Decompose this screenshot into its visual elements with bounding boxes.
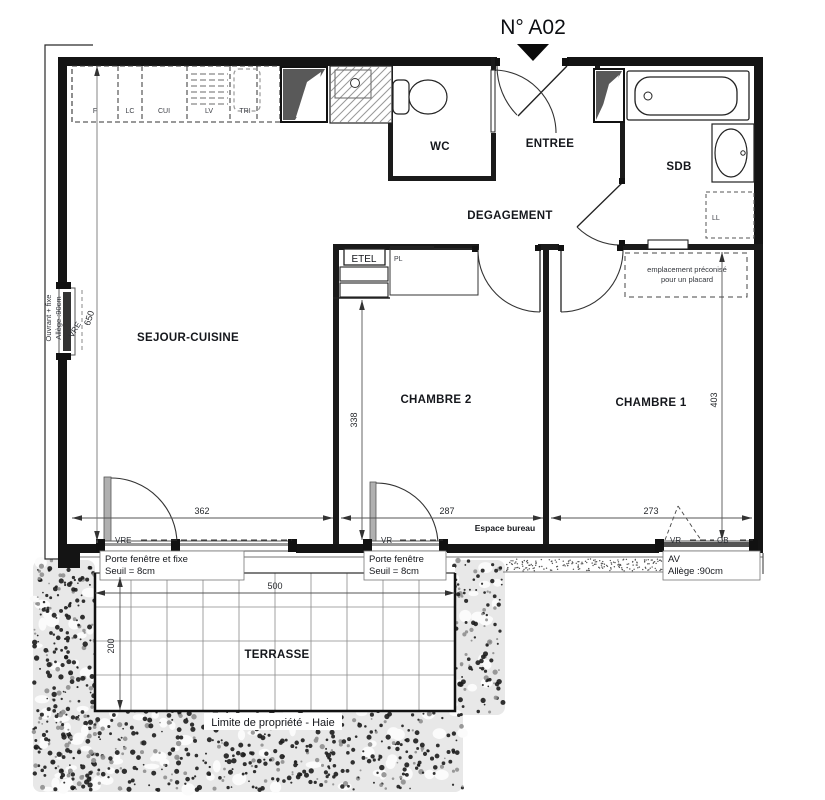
toilet-tank <box>393 80 409 114</box>
chambre2-label: CHAMBRE 2 <box>400 394 471 406</box>
wc-door <box>491 70 556 133</box>
window1-tag: VRE <box>115 536 131 545</box>
tri-bin <box>234 69 260 111</box>
bathtub <box>627 71 749 120</box>
pl-label: PL <box>394 256 403 263</box>
sdb-left-wall-lower <box>620 121 625 183</box>
window2-note-line2: Seuil = 8cm <box>369 566 419 577</box>
plan-title: N° A02 <box>500 16 566 61</box>
ll-label: LL <box>712 215 720 222</box>
unit-cui-label: CUI <box>158 108 170 115</box>
radiator <box>648 240 688 249</box>
placard-note-line2: pour un placard <box>661 275 713 284</box>
toilet-bowl <box>409 80 447 114</box>
espace-bureau-label: Espace bureau <box>475 523 535 533</box>
placard-note-line1: emplacement préconisé <box>647 265 727 274</box>
dim-chambre2-depth: 338 <box>349 412 359 427</box>
window3-note-line1: AV <box>668 554 681 565</box>
sdb-corner-unit <box>594 69 624 122</box>
etel-label: ETEL <box>351 254 376 265</box>
degagement-label: DEGAGEMENT <box>467 210 552 222</box>
sejour-french-door <box>104 477 177 545</box>
technical-duct <box>330 66 392 123</box>
unit-lv-label: LV <box>205 108 213 115</box>
chambre2-door <box>478 245 541 312</box>
washing-machine-slot: LL <box>706 192 754 238</box>
window3-tag-ob: OB <box>717 536 729 545</box>
sejour-label: SEJOUR-CUISINE <box>137 332 239 344</box>
dishwasher-drawers <box>191 74 228 104</box>
entree-label: ENTREE <box>526 138 574 150</box>
chambre1-chambre2-wall <box>543 250 549 544</box>
window3-tag-vr: VR <box>670 536 681 545</box>
terrasse-label: TERRASSE <box>244 649 309 661</box>
interior-walls <box>333 57 763 544</box>
wc-label: WC <box>430 141 450 153</box>
property-limit-label: Limite de propriété - Haie <box>204 713 342 730</box>
dim-chambre1-depth: 403 <box>709 392 719 407</box>
window3-note-line2: Allège :90cm <box>668 566 723 577</box>
chambre1-door <box>558 245 623 312</box>
chambre1-label: CHAMBRE 1 <box>615 397 686 409</box>
window2-note-line1: Porte fenêtre <box>369 554 424 565</box>
dim-chambre1-width: 273 <box>643 506 658 516</box>
floor-plan-page: Limite de propriété - Haie <box>0 0 825 800</box>
window2-tag: VR <box>381 536 392 545</box>
door-post-wall <box>538 244 559 250</box>
bathroom-sink <box>712 124 754 182</box>
etel-closet: ETEL <box>333 249 390 298</box>
limite-propriete-label: Limite de propriété - Haie <box>211 717 335 729</box>
unit-lc-label: LC <box>126 108 135 115</box>
entry-door <box>495 58 569 116</box>
dim-chambre2-width: 287 <box>439 506 454 516</box>
placard-closet: PL <box>390 246 478 295</box>
window1-note: Porte fenêtre et fixe Seuil = 8cm <box>100 551 244 580</box>
window1-note-line2: Seuil = 8cm <box>105 566 155 577</box>
apartment-number: N° A02 <box>500 16 566 39</box>
wc-bottom-wall <box>388 176 496 181</box>
window2-note: Porte fenêtre Seuil = 8cm <box>364 551 446 580</box>
unit-tri-label: TRI <box>239 108 250 115</box>
unit-f-label: F <box>93 108 97 115</box>
dim-terrasse-depth: 200 <box>106 638 116 653</box>
window1-note-line1: Porte fenêtre et fixe <box>105 554 188 565</box>
porte-fenetre-window <box>363 539 448 552</box>
suggested-wardrobe-area: emplacement préconisé pour un placard <box>625 253 747 297</box>
window3-note: AV Allège :90cm <box>663 551 760 580</box>
dim-sejour-width: 362 <box>194 506 209 516</box>
dim-sejour-depth: 650 <box>82 309 96 326</box>
wc-right-wall-bottom <box>491 133 496 180</box>
floor-plan-drawing: Limite de propriété - Haie <box>0 0 825 800</box>
entry-marker-icon <box>517 44 549 61</box>
sdb-label: SDB <box>666 161 691 173</box>
left-window-note-line2: Allège :90cm <box>54 296 63 339</box>
left-window-note-line1: Ouvrant + fixe <box>44 295 53 342</box>
kitchen-sink-unit <box>281 67 327 122</box>
sejour-chambre2-wall <box>333 244 339 544</box>
dim-terrasse-width: 500 <box>267 581 282 591</box>
sdb-door <box>577 178 625 246</box>
chambre1-top-wall <box>620 244 763 250</box>
kitchen-counter: F LC CUI LV TRI <box>72 66 280 122</box>
toilet <box>393 80 447 114</box>
